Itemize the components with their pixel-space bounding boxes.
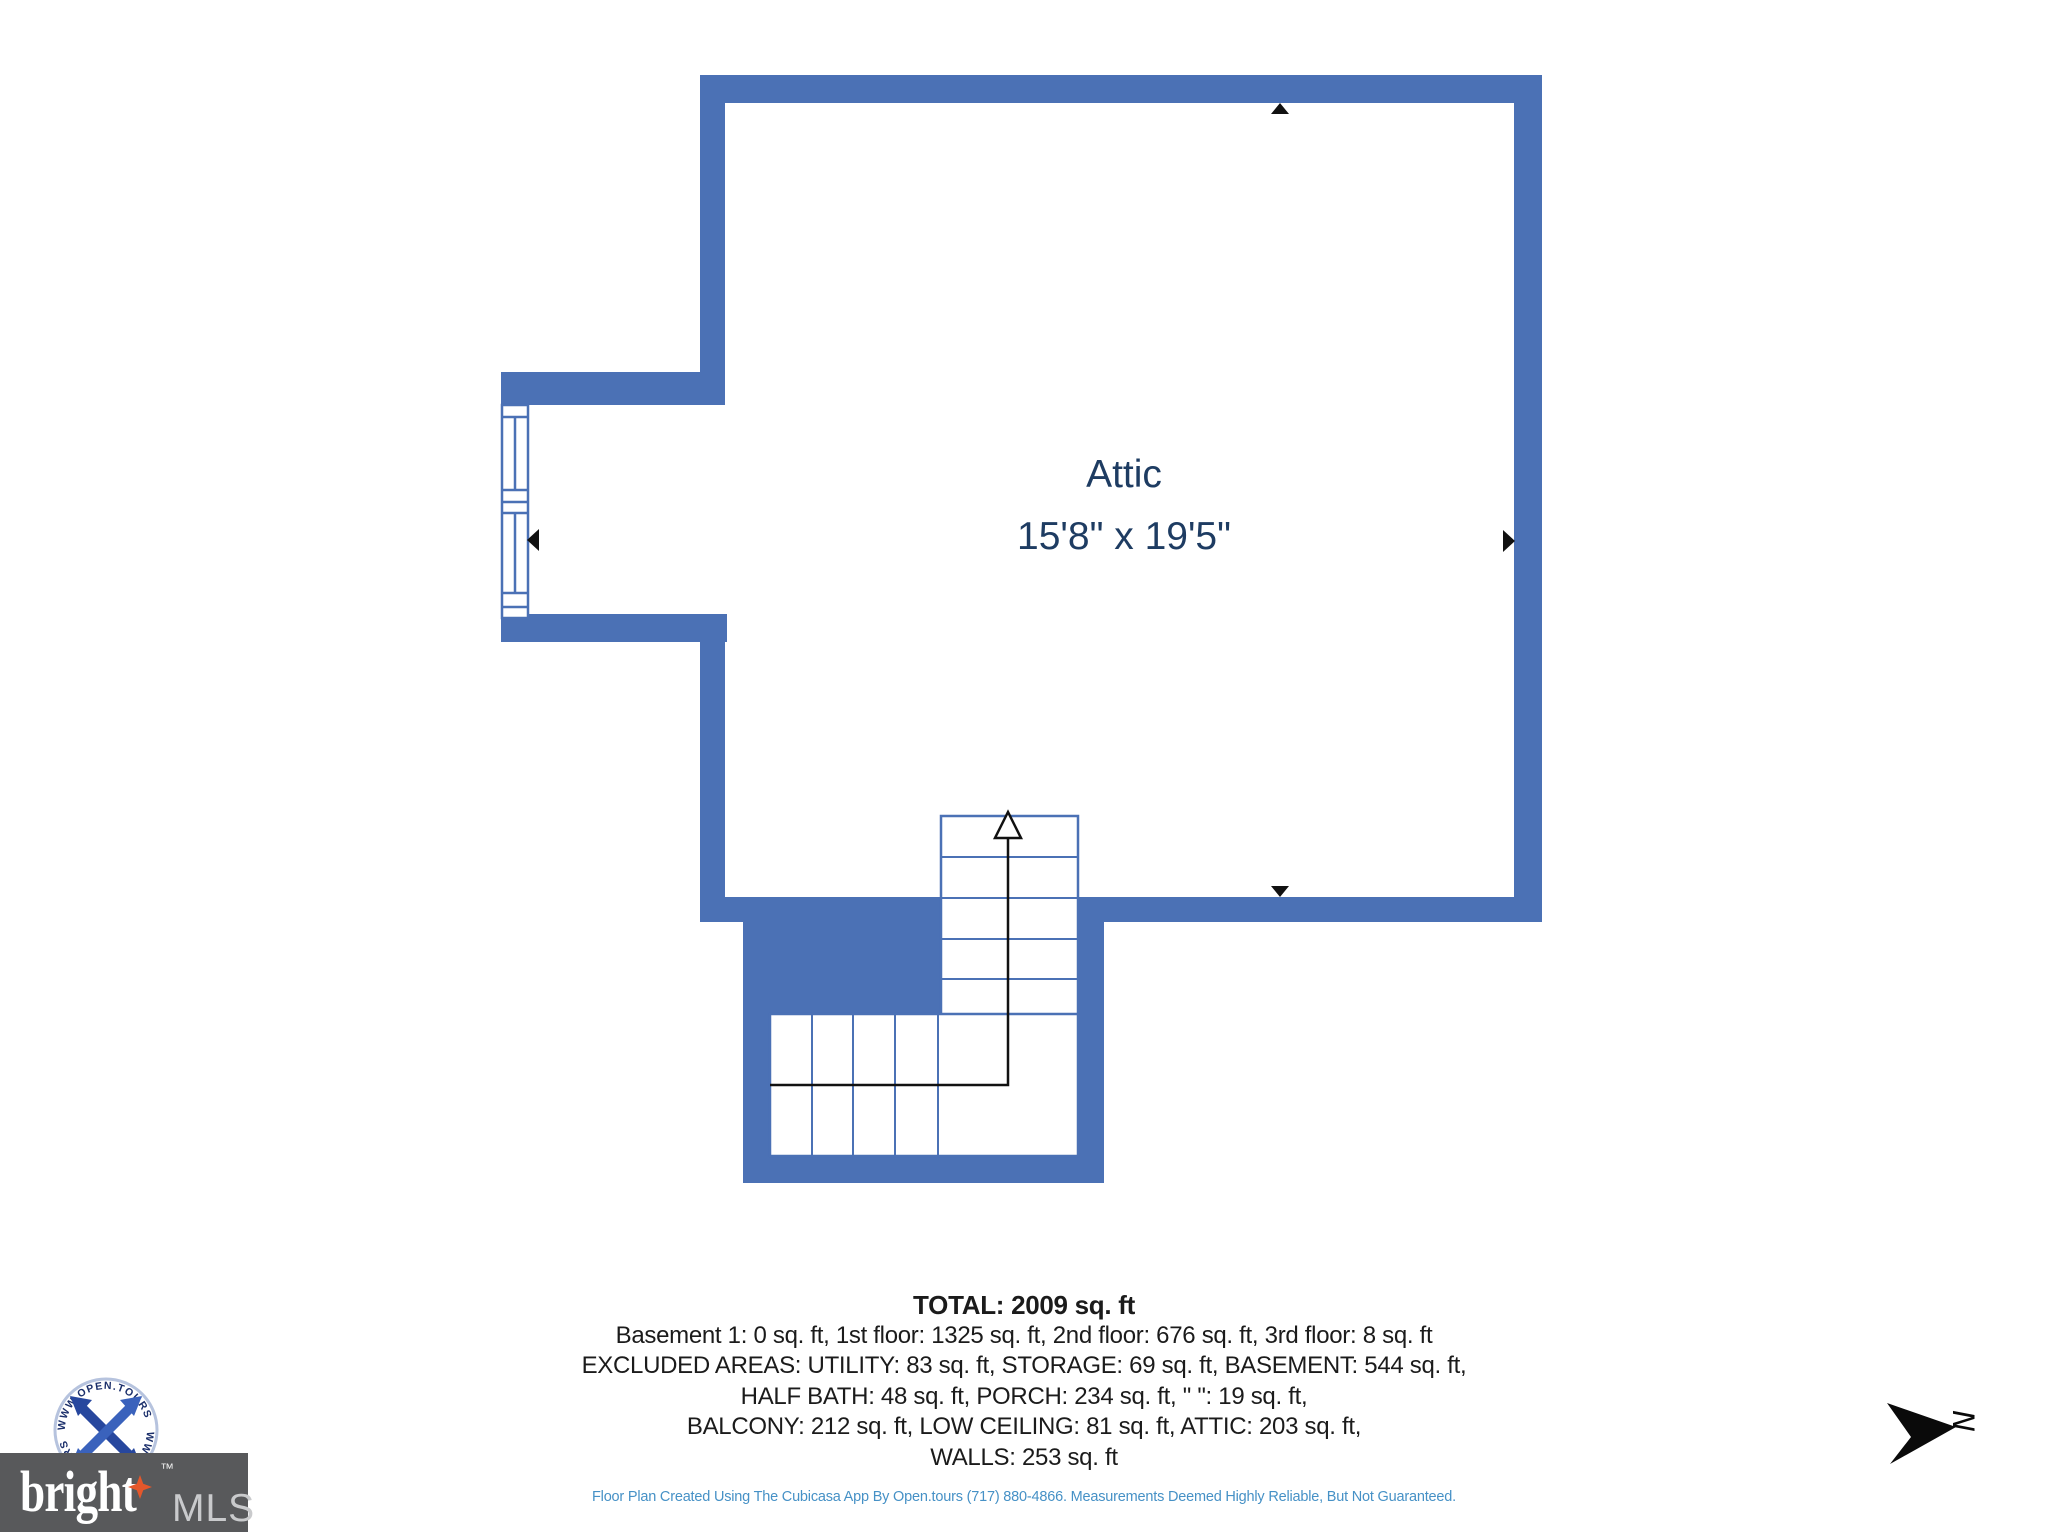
summary-line: EXCLUDED AREAS: UTILITY: 83 sq. ft, STOR… <box>0 1351 2048 1382</box>
wall-left-lower <box>700 614 725 922</box>
summary-line: HALF BATH: 48 sq. ft, PORCH: 234 sq. ft,… <box>0 1382 2048 1413</box>
wall-bottom-left <box>700 897 941 922</box>
mls-wordmark: MLS <box>172 1489 255 1528</box>
total-area-line: TOTAL: 2009 sq. ft <box>0 1290 2048 1321</box>
wall-right <box>1514 75 1542 922</box>
disclaimer-text: Floor Plan Created Using The Cubicasa Ap… <box>0 1489 2048 1505</box>
stair-upper-run <box>941 816 1078 1016</box>
room-name: Attic <box>874 444 1374 506</box>
wall-alcove-top <box>501 372 725 405</box>
window-symbol <box>502 405 528 618</box>
wall-stairwell-bottom <box>743 1156 1104 1183</box>
stair-landing-fill <box>743 922 941 1014</box>
bright-star-icon <box>128 1475 152 1499</box>
summary-line: Basement 1: 0 sq. ft, 1st floor: 1325 sq… <box>0 1321 2048 1352</box>
wall-stairwell-left <box>743 922 770 1183</box>
area-summary: TOTAL: 2009 sq. ft Basement 1: 0 sq. ft,… <box>0 1290 2048 1473</box>
wall-top <box>700 75 1542 103</box>
room-dimensions: 15'8" x 19'5" <box>874 506 1374 568</box>
floor-plan-page: WWW.OPEN.TOURS WWW.OPEN.TOURS Attic 15'8… <box>0 0 2048 1536</box>
wall-left-upper <box>700 75 725 405</box>
dimension-arrow-right-icon <box>1503 530 1515 552</box>
dimension-arrow-down-icon <box>1271 886 1289 897</box>
wall-stairwell-right <box>1077 922 1104 1183</box>
summary-line: WALLS: 253 sq. ft <box>0 1443 2048 1474</box>
wall-alcove-bottom <box>501 614 727 642</box>
bright-wordmark: bright <box>20 1463 136 1521</box>
dimension-arrow-up-icon <box>1271 103 1289 114</box>
wall-bottom-right <box>1078 897 1542 922</box>
compass-north-label: N <box>1946 1410 1980 1432</box>
trademark-symbol: ™ <box>160 1460 174 1476</box>
bright-mls-logo: bright ™ MLS <box>0 1453 248 1532</box>
room-label-block: Attic 15'8" x 19'5" <box>874 444 1374 568</box>
summary-line: BALCONY: 212 sq. ft, LOW CEILING: 81 sq.… <box>0 1412 2048 1443</box>
